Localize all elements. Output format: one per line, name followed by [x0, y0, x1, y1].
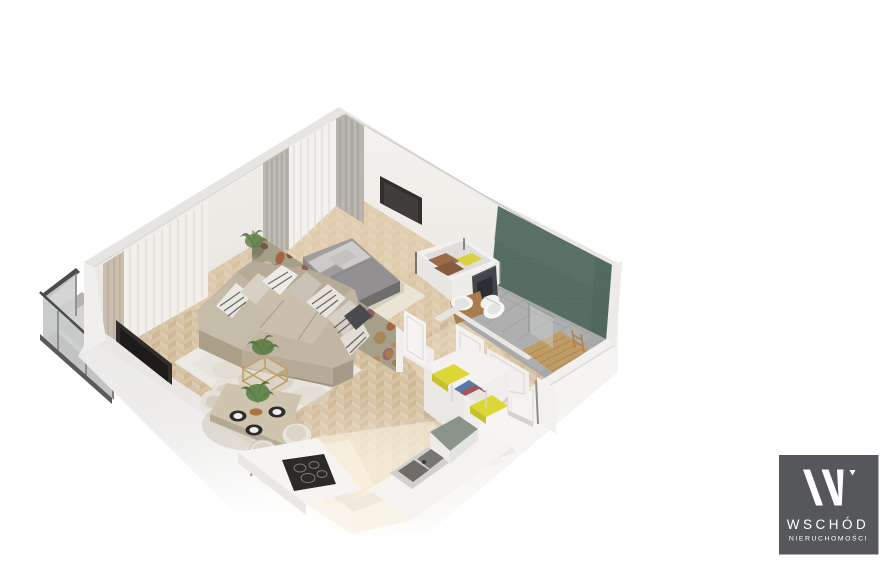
svg-text:WSCHÓD: WSCHÓD	[787, 517, 870, 532]
svg-text:NIERUCHOMOŚCI: NIERUCHOMOŚCI	[789, 534, 868, 543]
